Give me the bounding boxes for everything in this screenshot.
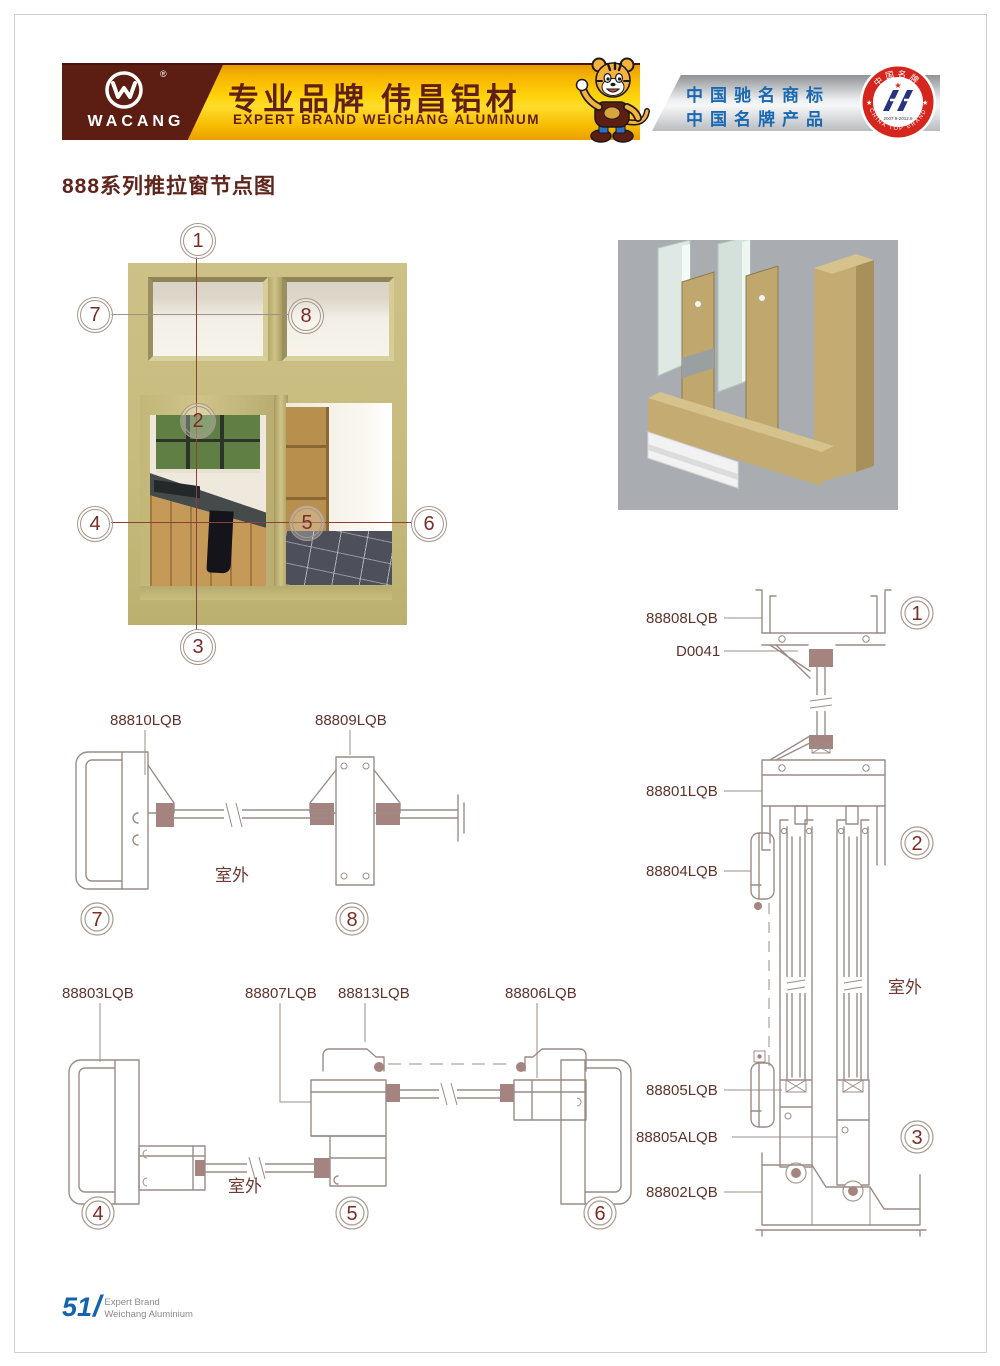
callout-2: 2 — [180, 403, 216, 439]
registered-mark: ® — [160, 69, 167, 79]
transom-mullion — [268, 277, 282, 361]
page-footer: 51 / Expert Brand Weichang Aluminium — [62, 1294, 193, 1321]
node-5: 5 — [336, 1197, 368, 1229]
profile-3d-render — [618, 240, 898, 510]
outdoor-label-vertical: 室外 — [888, 978, 922, 997]
honor-text-1: 中国驰名商标 — [686, 81, 866, 106]
glass-lines — [174, 795, 464, 841]
room-wall-glare — [366, 403, 392, 533]
label-88807lqb: 88807LQB — [245, 985, 317, 1002]
label-88803lqb: 88803LQB — [62, 985, 134, 1002]
label-88802lqb: 88802LQB — [646, 1184, 718, 1201]
diagram-transom-section: 88810LQB 88809LQB 室外 — [60, 695, 480, 940]
svg-text:7: 7 — [91, 909, 102, 931]
callout-line-1-3 — [196, 257, 197, 630]
diagram-vertical-section: 88808LQB D0041 88801LQB 88804LQB 88805LQ… — [630, 575, 970, 1240]
kitchen-view-glass — [150, 415, 266, 586]
diagram-sash-horizontal-section: 88803LQB 88807LQB 88813LQB 88806LQB — [55, 980, 645, 1235]
svg-text:8: 8 — [346, 909, 357, 931]
callout-4: 4 — [77, 506, 113, 542]
label-88805alqb: 88805ALQB — [636, 1129, 718, 1146]
catalog-page: ® WACANG 专业品牌 伟昌铝材 EXPERT BRAND WEICHANG… — [0, 0, 1000, 1366]
room-view-glass — [286, 403, 392, 585]
kitchen-towel — [206, 510, 233, 573]
glass-right-h — [400, 1082, 500, 1106]
svg-text:6: 6 — [594, 1203, 605, 1225]
callout-3: 3 — [180, 629, 216, 665]
profile-left-jamb-h — [69, 1060, 139, 1204]
sash-rails-vertical — [780, 820, 869, 1080]
svg-text:1: 1 — [911, 603, 922, 625]
footer-brand-lines: Expert Brand Weichang Aluminium — [104, 1294, 193, 1321]
node-4: 4 — [82, 1197, 114, 1229]
sash-bottom-left — [780, 1080, 812, 1183]
label-88810lqb: 88810LQB — [110, 712, 182, 729]
tiger-mascot-icon — [570, 52, 654, 144]
label-88801lqb: 88801LQB — [646, 783, 718, 800]
hardware-88805 — [751, 1051, 774, 1127]
badge-star-right: ★ — [922, 99, 928, 107]
badge-star-left: ★ — [866, 99, 872, 107]
photo-bottom-rail — [140, 586, 392, 600]
footer-divider: / — [93, 1294, 101, 1320]
svg-text:2: 2 — [911, 833, 922, 855]
node-1: 1 — [901, 597, 933, 629]
label-88805lqb: 88805LQB — [646, 1082, 718, 1099]
footer-line-2: Weichang Aluminium — [104, 1309, 193, 1321]
node-6: 6 — [584, 1197, 616, 1229]
svg-text:3: 3 — [911, 1127, 922, 1149]
honor-text-2: 中国名牌产品 — [686, 105, 866, 130]
brand-name: WACANG — [76, 113, 196, 131]
profile-sill-88802 — [756, 1153, 926, 1236]
svg-text:4: 4 — [92, 1203, 103, 1225]
transom-pane-left — [148, 277, 268, 361]
sash-bottom-right — [837, 1080, 869, 1201]
callout-7: 7 — [77, 297, 113, 333]
banner-slogan-en: EXPERT BRAND WEICHANG ALUMINUM — [233, 112, 563, 127]
node-8: 8 — [336, 903, 368, 935]
label-d0041: D0041 — [676, 643, 720, 660]
label-88806lqb: 88806LQB — [505, 985, 577, 1002]
node-3: 3 — [901, 1121, 933, 1153]
page-number: 51 — [62, 1294, 92, 1320]
callout-8: 8 — [288, 298, 324, 334]
glass-transom-vertical — [810, 667, 832, 745]
label-88813lqb: 88813LQB — [338, 985, 410, 1002]
callout-6: 6 — [411, 506, 447, 542]
callout-line-7-8 — [111, 314, 288, 315]
window-photo — [128, 263, 407, 625]
badge-dates: 2007.9-2012.9 — [883, 116, 913, 121]
callout-line-4-6 — [111, 522, 411, 523]
outdoor-label-transom: 室外 — [215, 866, 249, 885]
glass-sashes-vertical — [786, 837, 863, 1077]
label-88809lqb: 88809LQB — [315, 712, 387, 729]
svg-text:★: ★ — [894, 81, 901, 90]
page-title: 888系列推拉窗节点图 — [62, 170, 276, 200]
node-7: 7 — [81, 903, 113, 935]
profile-right-jamb-h — [561, 1060, 631, 1204]
callout-1: 1 — [180, 223, 216, 259]
label-88804lqb: 88804LQB — [646, 863, 718, 880]
outdoor-label-horizontal: 室外 — [228, 1177, 262, 1196]
profile-3d-drawing — [618, 240, 898, 510]
svg-text:5: 5 — [346, 1203, 357, 1225]
footer-line-1: Expert Brand — [104, 1297, 193, 1309]
callout-5: 5 — [289, 505, 325, 541]
wacang-logo-icon — [98, 67, 150, 113]
china-top-brand-medal-icon: ★ 2007.9-2012.9 中国名牌 CHINA TOP BRAND ★ ★ — [858, 62, 938, 142]
node-2: 2 — [901, 827, 933, 859]
label-88808lqb: 88808LQB — [646, 610, 718, 627]
